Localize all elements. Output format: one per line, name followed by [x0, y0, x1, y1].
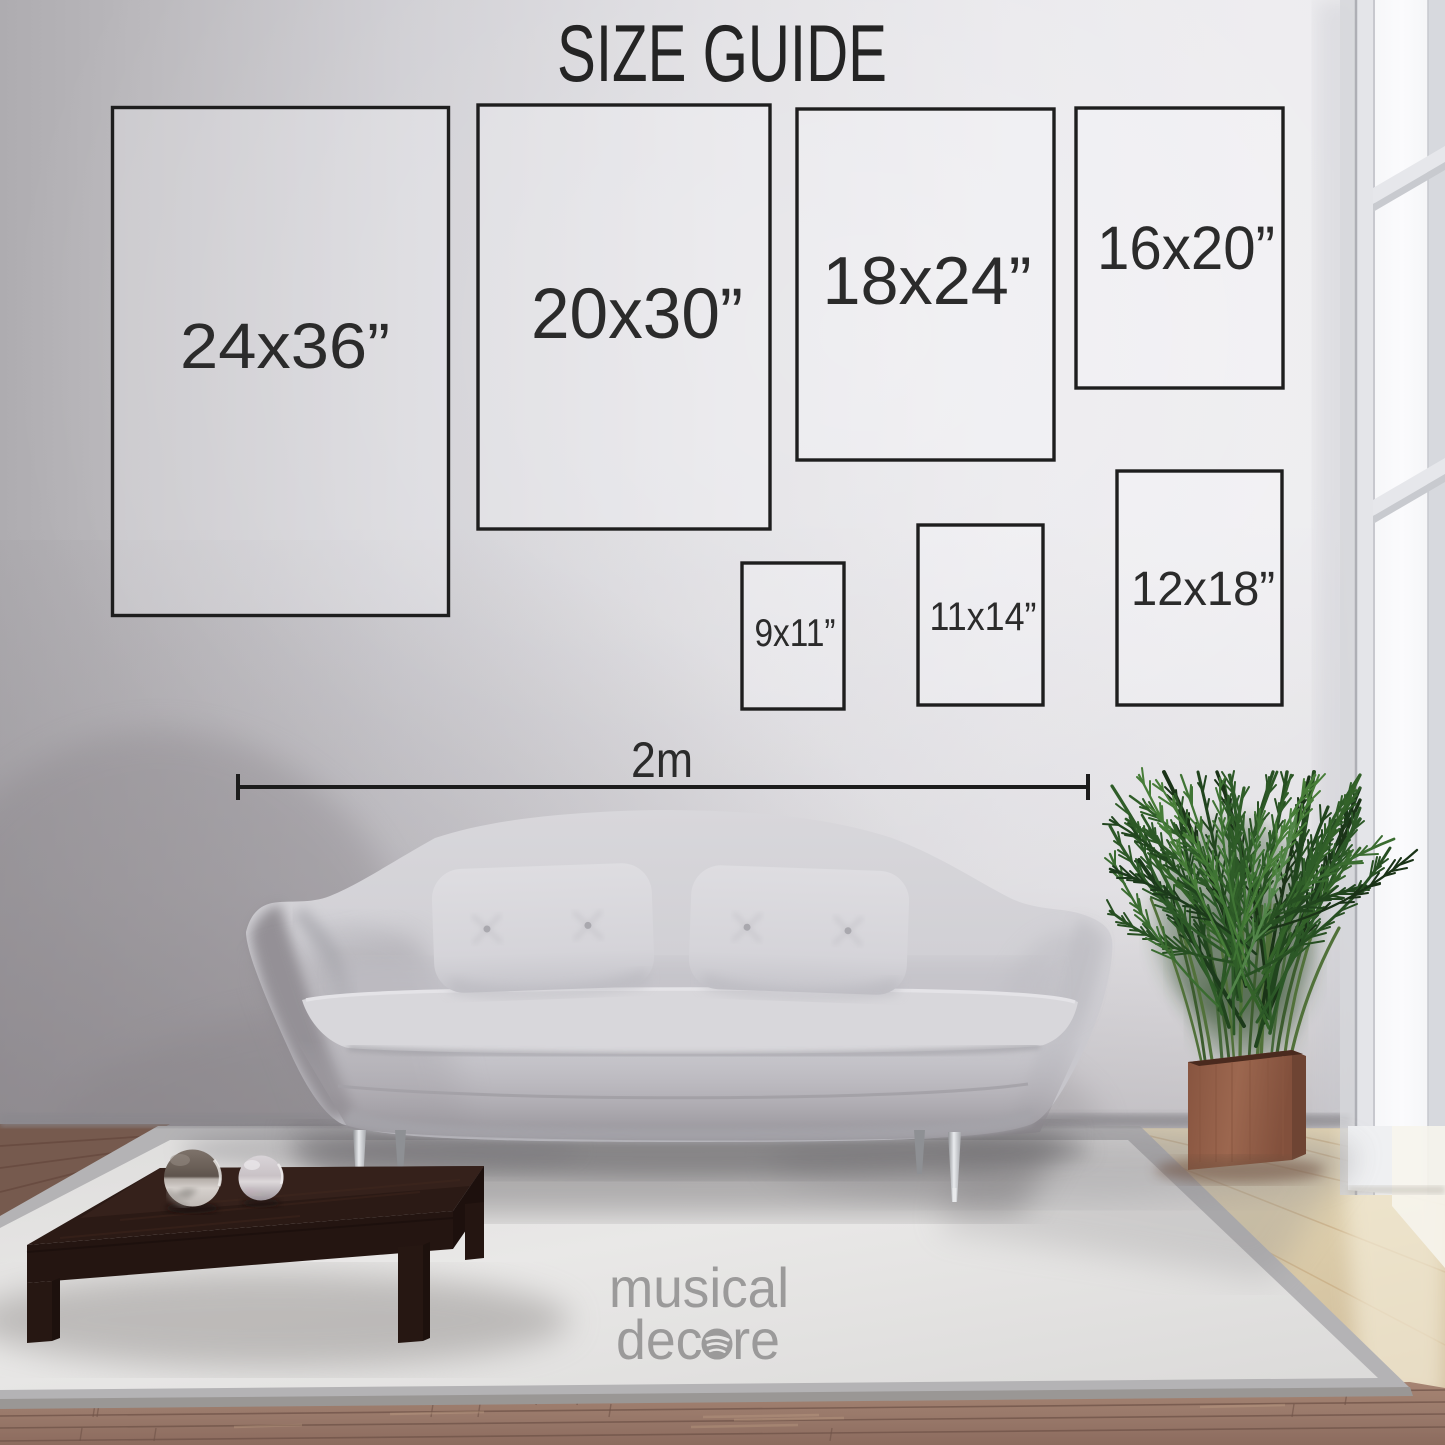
svg-text:16x20”: 16x20”	[1097, 214, 1275, 282]
svg-text:2m: 2m	[631, 732, 693, 788]
svg-text:12x18”: 12x18”	[1131, 563, 1275, 616]
svg-text:11x14”: 11x14”	[930, 595, 1037, 639]
svg-text:9x11”: 9x11”	[755, 612, 836, 655]
svg-text:24x36”: 24x36”	[180, 310, 390, 382]
svg-text:decore: decore	[616, 1308, 780, 1371]
svg-text:20x30”: 20x30”	[531, 275, 743, 354]
svg-text:SIZE GUIDE: SIZE GUIDE	[557, 9, 887, 99]
svg-text:18x24”: 18x24”	[823, 243, 1032, 319]
